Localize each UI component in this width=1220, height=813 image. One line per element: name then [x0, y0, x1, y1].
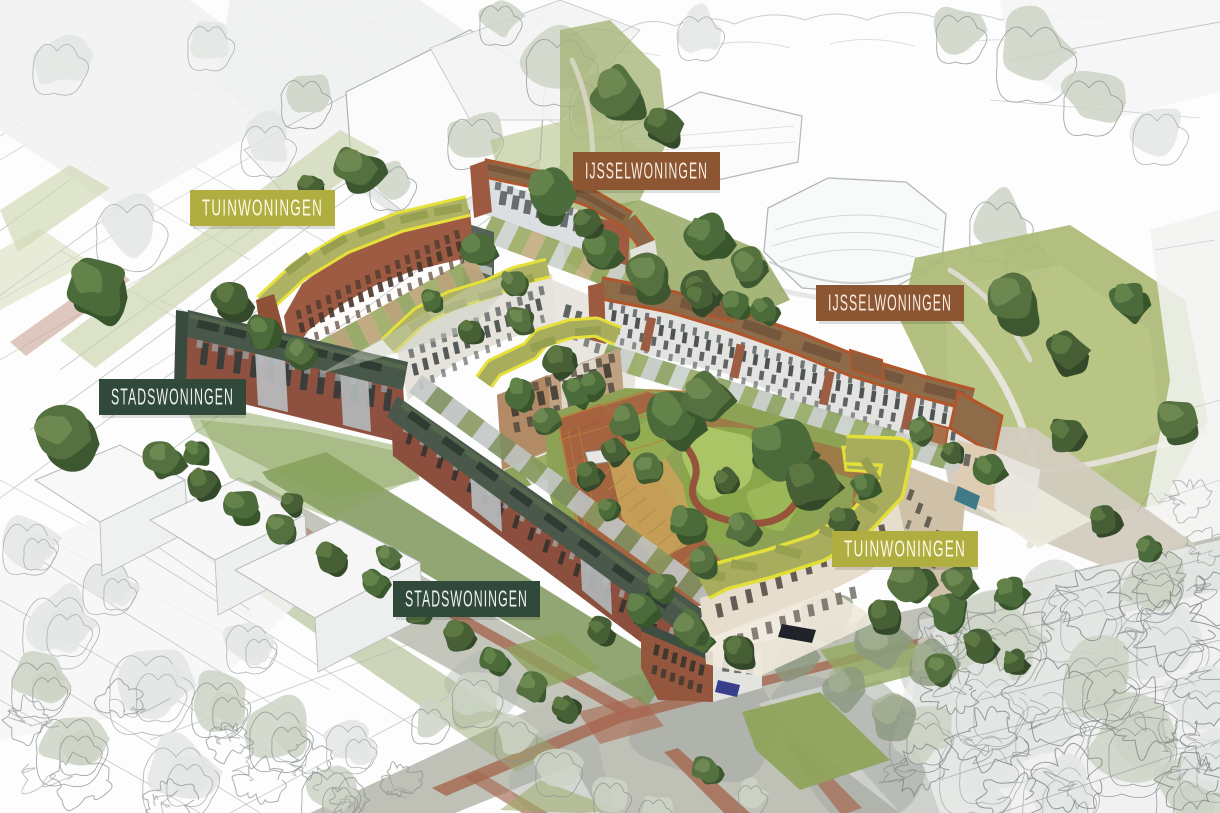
svg-text:IJSSELWONINGEN: IJSSELWONINGEN	[828, 290, 952, 316]
svg-text:TUINWONINGEN: TUINWONINGEN	[844, 536, 966, 562]
svg-text:STADSWONINGEN: STADSWONINGEN	[405, 586, 528, 612]
svg-text:TUINWONINGEN: TUINWONINGEN	[202, 195, 323, 221]
svg-text:STADSWONINGEN: STADSWONINGEN	[111, 384, 234, 410]
svg-text:IJSSELWONINGEN: IJSSELWONINGEN	[585, 158, 708, 184]
